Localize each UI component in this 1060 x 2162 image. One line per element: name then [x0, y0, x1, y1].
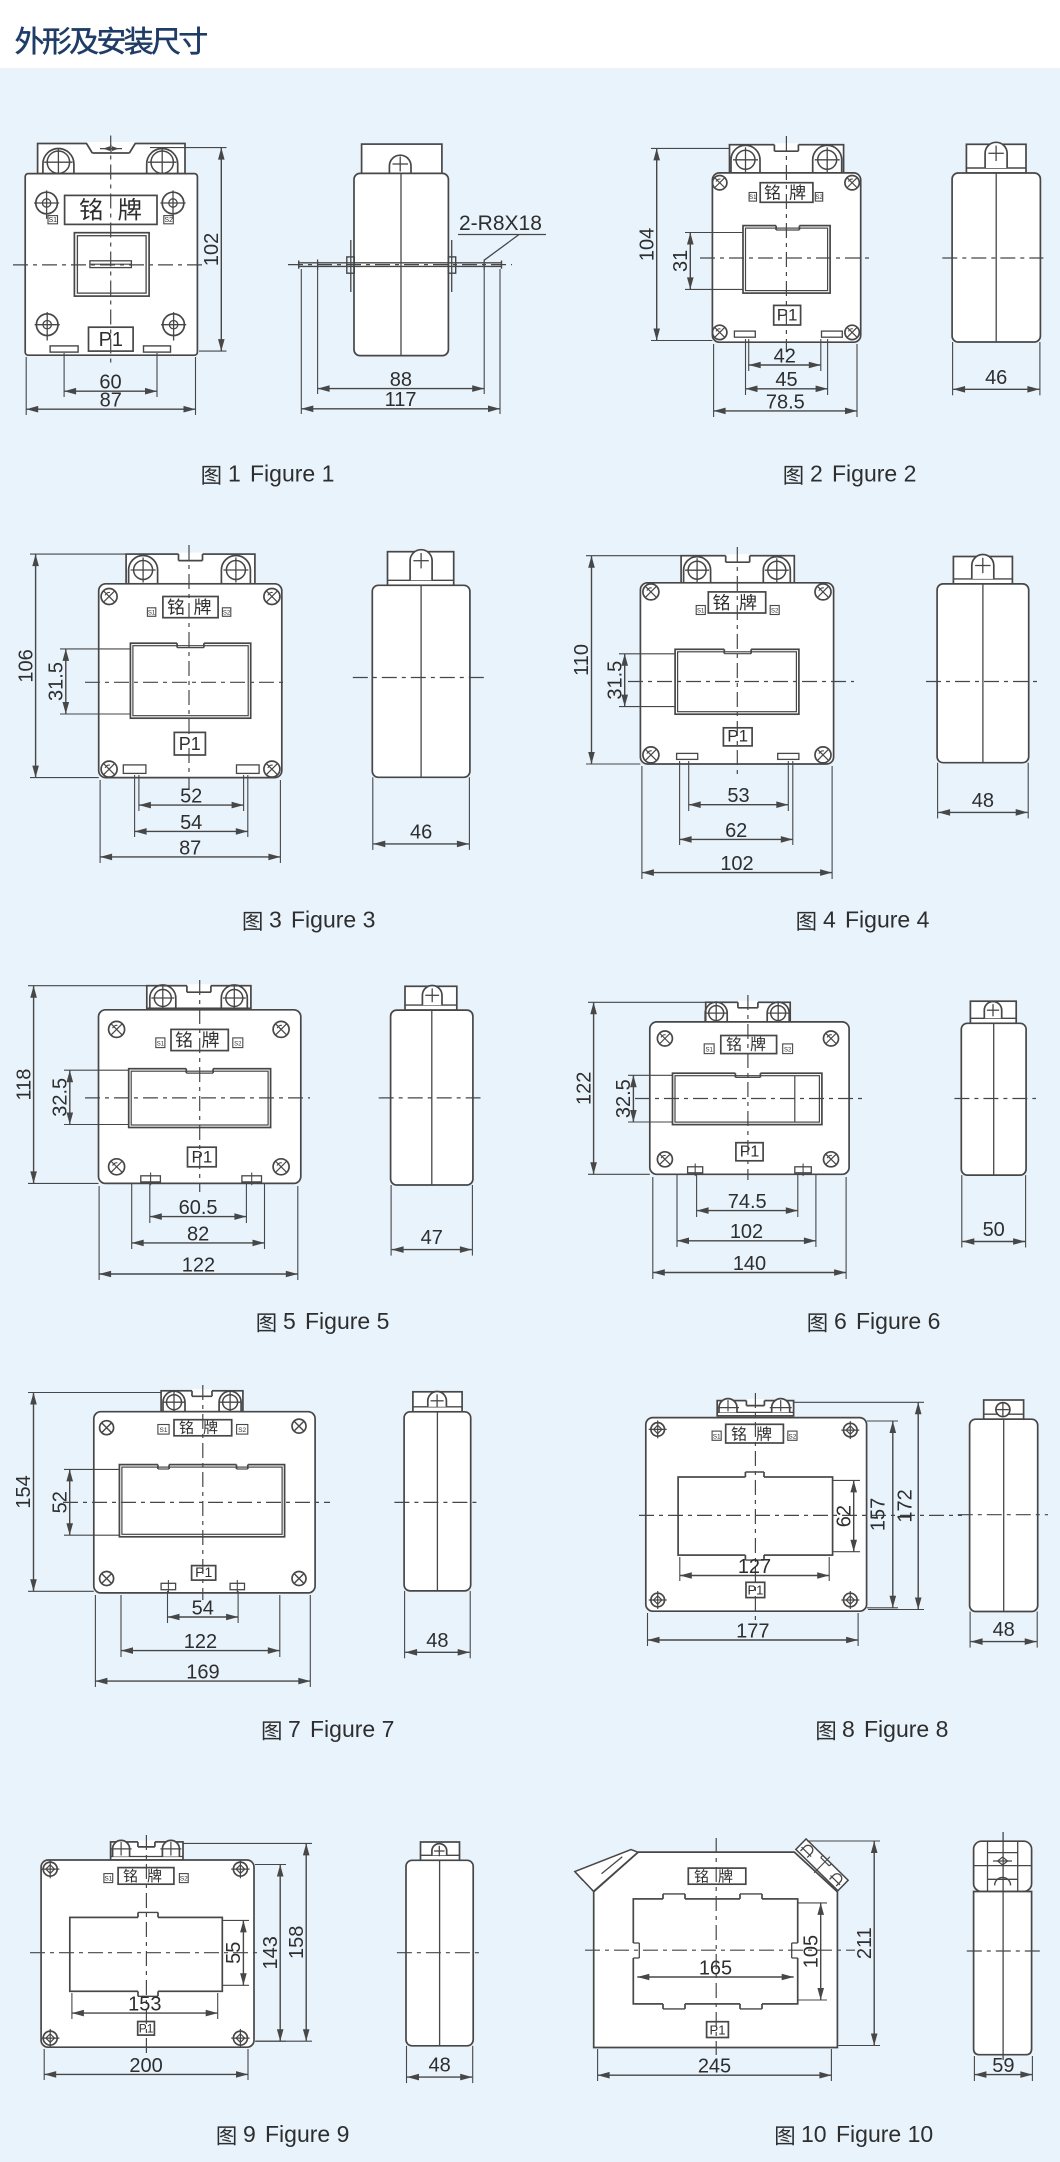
svg-text:S1: S1 [697, 609, 705, 615]
svg-text:211: 211 [854, 1927, 876, 1959]
svg-text:Figure 7: Figure 7 [310, 1716, 394, 1742]
svg-text:6: 6 [834, 1308, 847, 1334]
svg-text:62: 62 [833, 1505, 855, 1527]
svg-text:59: 59 [992, 2055, 1014, 2077]
svg-text:Figure 2: Figure 2 [832, 461, 916, 487]
svg-text:46: 46 [985, 367, 1007, 389]
svg-text:48: 48 [972, 790, 994, 812]
svg-text:S2: S2 [815, 195, 823, 201]
svg-text:5: 5 [283, 1308, 296, 1334]
svg-text:2-R8X18: 2-R8X18 [459, 212, 542, 235]
svg-text:3: 3 [269, 907, 282, 933]
svg-text:48: 48 [426, 1630, 448, 1652]
svg-text:P1: P1 [195, 1564, 212, 1580]
svg-text:9: 9 [243, 2121, 256, 2147]
svg-text:62: 62 [725, 820, 747, 842]
svg-text:S1: S1 [157, 1041, 165, 1047]
svg-text:S2: S2 [771, 609, 779, 615]
svg-text:P1: P1 [710, 2022, 726, 2037]
svg-text:P1: P1 [777, 306, 798, 325]
svg-text:165: 165 [699, 1957, 732, 1979]
svg-text:102: 102 [201, 233, 223, 266]
svg-text:S1: S1 [49, 217, 58, 224]
svg-text:48: 48 [993, 1619, 1015, 1641]
svg-text:122: 122 [573, 1072, 595, 1105]
svg-text:88: 88 [390, 369, 412, 391]
svg-text:32.5: 32.5 [50, 1078, 72, 1117]
svg-text:Figure 8: Figure 8 [864, 1716, 948, 1742]
svg-text:245: 245 [698, 2056, 731, 2078]
svg-text:Figure 4: Figure 4 [845, 907, 930, 933]
svg-text:S2: S2 [238, 1427, 246, 1434]
svg-text:S1: S1 [104, 1876, 112, 1883]
svg-text:87: 87 [100, 390, 122, 412]
svg-text:104: 104 [636, 228, 658, 261]
svg-text:1: 1 [228, 461, 241, 487]
svg-text:106: 106 [15, 649, 37, 682]
svg-text:50: 50 [983, 1219, 1005, 1241]
svg-text:143: 143 [260, 1936, 282, 1969]
svg-text:Figure 9: Figure 9 [265, 2121, 349, 2147]
svg-text:60.5: 60.5 [179, 1197, 218, 1219]
svg-text:78.5: 78.5 [766, 391, 805, 413]
svg-text:52: 52 [180, 786, 202, 808]
svg-text:177: 177 [736, 1620, 769, 1642]
svg-text:42: 42 [774, 345, 796, 367]
svg-text:Figure 3: Figure 3 [291, 907, 375, 933]
svg-text:54: 54 [180, 812, 202, 834]
svg-text:172: 172 [895, 1489, 917, 1522]
svg-text:32.5: 32.5 [613, 1079, 635, 1118]
svg-text:154: 154 [13, 1475, 35, 1508]
svg-text:46: 46 [410, 821, 432, 843]
svg-text:P1: P1 [192, 1147, 213, 1166]
svg-text:S1: S1 [148, 611, 156, 617]
svg-text:117: 117 [385, 389, 417, 411]
svg-text:87: 87 [179, 837, 201, 859]
svg-text:P1: P1 [179, 734, 201, 754]
svg-text:118: 118 [13, 1069, 35, 1101]
svg-text:10: 10 [801, 2121, 827, 2147]
svg-text:S2: S2 [784, 1047, 792, 1053]
svg-text:48: 48 [428, 2055, 450, 2077]
svg-text:8: 8 [842, 1716, 855, 1742]
svg-text:S2: S2 [788, 1433, 796, 1440]
svg-text:S2: S2 [223, 611, 231, 617]
svg-text:153: 153 [128, 1994, 161, 2016]
svg-text:47: 47 [421, 1227, 443, 1249]
svg-text:45: 45 [775, 369, 797, 391]
svg-text:122: 122 [182, 1254, 215, 1276]
svg-text:105: 105 [800, 1935, 822, 1968]
svg-text:2: 2 [810, 461, 823, 487]
svg-text:S2: S2 [180, 1876, 188, 1883]
svg-text:31: 31 [670, 250, 692, 272]
svg-text:127: 127 [738, 1556, 771, 1578]
svg-text:S1: S1 [749, 195, 757, 201]
svg-text:4: 4 [823, 907, 836, 933]
svg-text:200: 200 [129, 2055, 162, 2077]
svg-text:102: 102 [730, 1221, 763, 1243]
svg-text:82: 82 [187, 1223, 209, 1245]
svg-text:74.5: 74.5 [728, 1191, 767, 1213]
svg-text:102: 102 [720, 853, 753, 875]
svg-text:31.5: 31.5 [46, 662, 68, 701]
svg-text:169: 169 [186, 1662, 219, 1684]
svg-text:Figure 6: Figure 6 [856, 1308, 940, 1334]
svg-text:7: 7 [288, 1716, 301, 1742]
svg-text:52: 52 [49, 1491, 71, 1513]
svg-text:S1: S1 [706, 1047, 714, 1053]
svg-text:158: 158 [286, 1926, 308, 1959]
svg-text:31.5: 31.5 [604, 661, 626, 700]
svg-text:Figure 1: Figure 1 [250, 461, 334, 487]
svg-text:157: 157 [868, 1498, 890, 1531]
svg-text:Figure 5: Figure 5 [305, 1308, 389, 1334]
svg-text:S2: S2 [234, 1041, 242, 1047]
svg-text:S2: S2 [164, 217, 173, 224]
svg-text:53: 53 [727, 785, 749, 807]
svg-text:S1: S1 [160, 1427, 168, 1434]
svg-text:140: 140 [733, 1253, 766, 1275]
svg-text:122: 122 [184, 1631, 217, 1653]
svg-text:Figure 10: Figure 10 [836, 2121, 933, 2147]
svg-text:54: 54 [192, 1597, 214, 1619]
svg-text:P1: P1 [740, 1144, 760, 1161]
svg-text:S1: S1 [713, 1433, 721, 1440]
svg-text:110: 110 [571, 644, 593, 676]
